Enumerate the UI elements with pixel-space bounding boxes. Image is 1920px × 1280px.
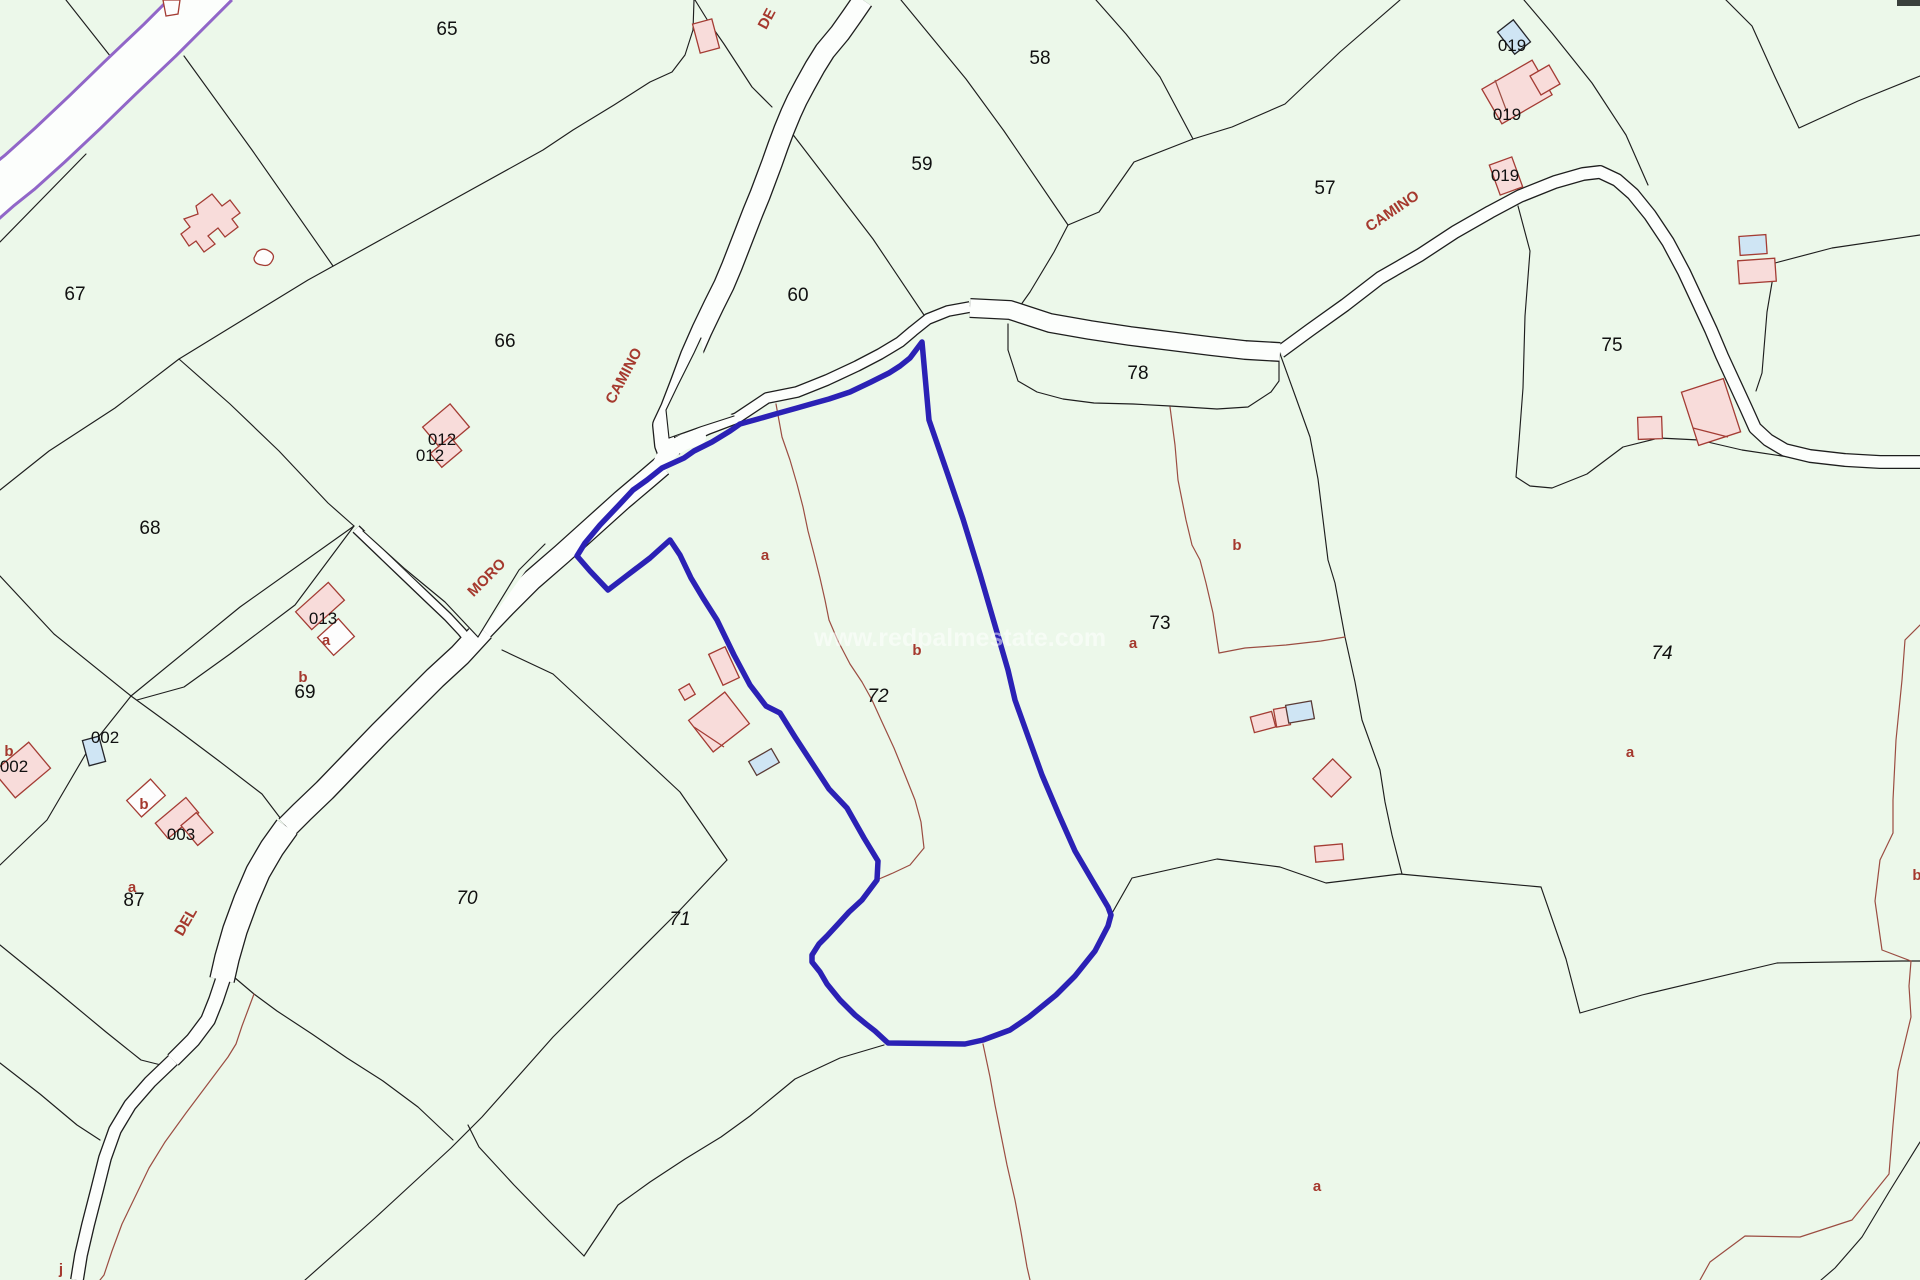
- svg-text:65: 65: [436, 19, 457, 40]
- svg-text:a: a: [1313, 1178, 1322, 1195]
- svg-text:68: 68: [139, 518, 160, 539]
- svg-text:58: 58: [1029, 48, 1050, 69]
- svg-text:b: b: [139, 796, 148, 813]
- svg-text:019: 019: [1498, 36, 1526, 55]
- svg-text:59: 59: [911, 154, 932, 175]
- svg-text:66: 66: [494, 331, 515, 352]
- svg-text:72: 72: [867, 686, 889, 707]
- svg-text:003: 003: [167, 825, 195, 844]
- svg-text:74: 74: [1651, 643, 1672, 664]
- svg-text:019: 019: [1491, 166, 1519, 185]
- svg-text:b: b: [1232, 537, 1241, 554]
- svg-text:a: a: [1129, 635, 1138, 652]
- svg-text:www.redpalmestate.com: www.redpalmestate.com: [813, 624, 1106, 652]
- svg-text:b: b: [298, 669, 307, 686]
- svg-text:78: 78: [1127, 363, 1148, 384]
- svg-text:73: 73: [1149, 613, 1170, 634]
- svg-text:57: 57: [1314, 178, 1335, 199]
- svg-text:b: b: [4, 743, 13, 760]
- svg-text:013: 013: [309, 609, 337, 628]
- svg-text:60: 60: [787, 285, 808, 306]
- svg-text:67: 67: [64, 284, 85, 305]
- svg-text:71: 71: [669, 909, 690, 930]
- svg-text:a: a: [761, 547, 770, 564]
- svg-text:a: a: [1626, 744, 1635, 761]
- svg-text:002: 002: [91, 728, 119, 747]
- svg-text:j: j: [58, 1261, 63, 1278]
- svg-text:019: 019: [1493, 105, 1521, 124]
- svg-text:012: 012: [416, 446, 444, 465]
- svg-text:70: 70: [456, 888, 478, 909]
- svg-text:b: b: [1912, 867, 1920, 884]
- svg-text:b: b: [912, 642, 921, 659]
- svg-text:75: 75: [1601, 335, 1622, 356]
- svg-text:a: a: [128, 879, 137, 896]
- svg-text:a: a: [322, 632, 331, 649]
